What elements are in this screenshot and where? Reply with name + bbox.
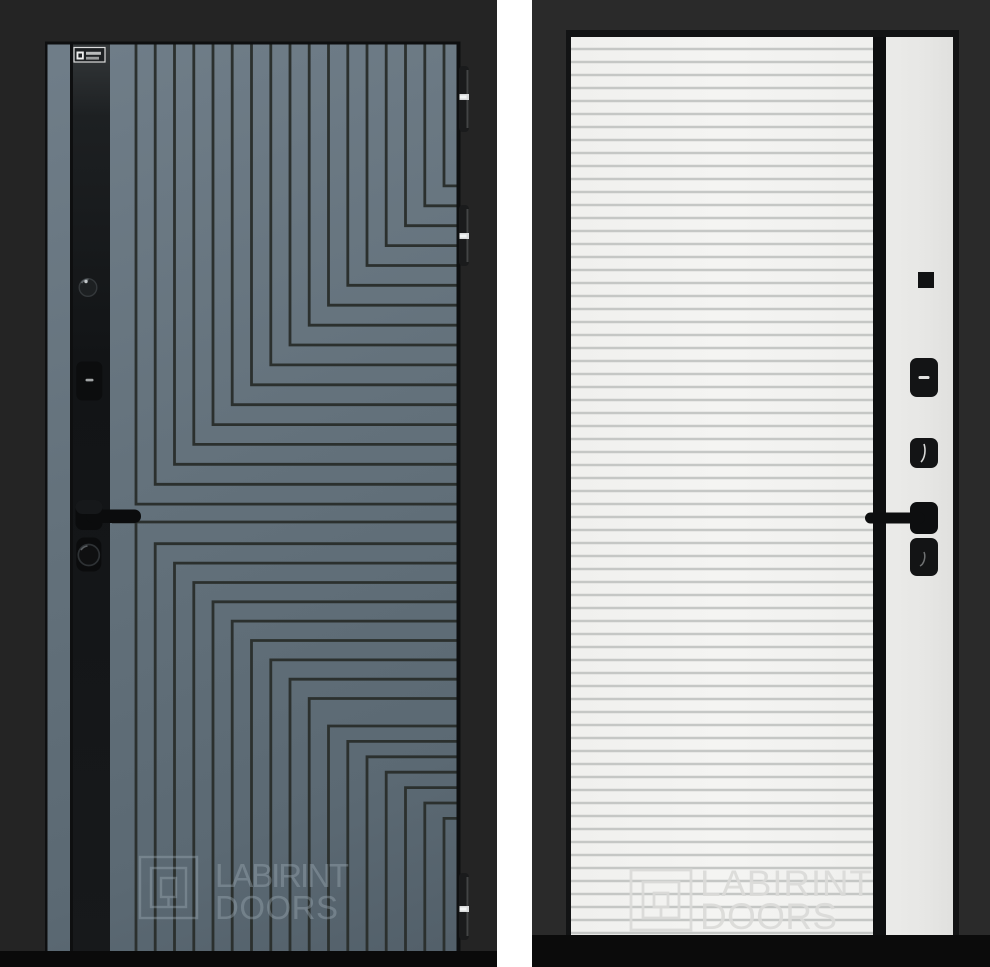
svg-text:DOORS: DOORS (215, 889, 338, 926)
svg-text:DOORS: DOORS (700, 896, 837, 937)
